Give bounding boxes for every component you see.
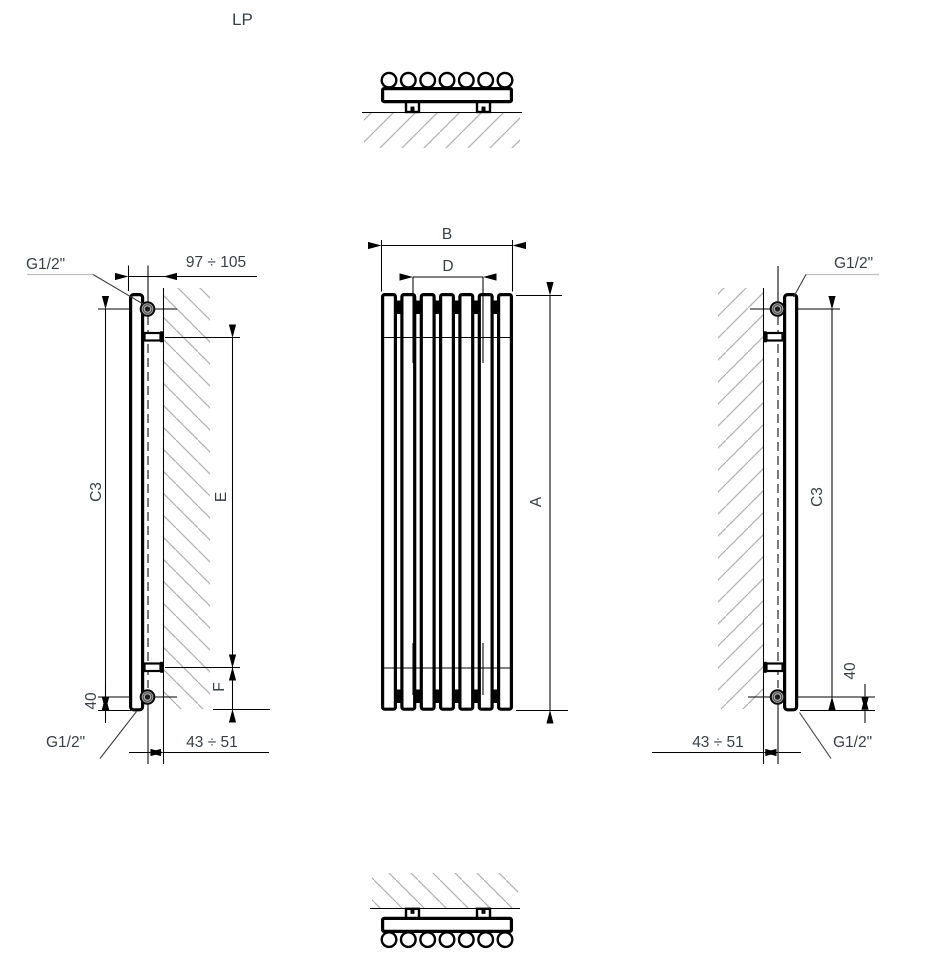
dim-label-43-51: 43 ÷ 51 bbox=[186, 734, 238, 751]
dim-label-A: A bbox=[528, 496, 545, 507]
mounting-bracket bbox=[406, 102, 419, 112]
tube-sections bbox=[382, 932, 513, 947]
wall-bracket-bottom bbox=[763, 662, 782, 673]
dim-label-E: E bbox=[213, 492, 230, 502]
dim-label-F: F bbox=[211, 682, 228, 691]
dimension-axis-wall: 43 ÷ 51 bbox=[652, 734, 801, 753]
collector-section bbox=[383, 89, 512, 102]
connection-valve-bottom bbox=[141, 690, 155, 704]
connection-callout-bottom: G1/2" bbox=[46, 712, 137, 759]
collector-section bbox=[383, 918, 512, 931]
dim-label-D: D bbox=[442, 258, 453, 275]
bottom-view-section bbox=[370, 873, 520, 947]
dim-label-C3: C3 bbox=[809, 487, 826, 507]
mounting-bracket bbox=[477, 102, 490, 112]
dim-label-40: 40 bbox=[842, 662, 859, 680]
dimension-E: E bbox=[213, 338, 233, 667]
dimension-A: A bbox=[516, 296, 568, 711]
drawing-canvas: LP bbox=[0, 0, 937, 967]
dimension-axis-wall: 43 ÷ 51 bbox=[129, 734, 269, 753]
dim-label-40: 40 bbox=[83, 692, 100, 710]
dimension-D: D bbox=[413, 258, 483, 277]
dimension-F: F bbox=[211, 668, 233, 709]
front-view: B D A bbox=[382, 226, 569, 711]
tube-sections bbox=[382, 73, 513, 88]
wall-hatch-bottom bbox=[372, 873, 518, 908]
connection-callout-bottom: G1/2" bbox=[800, 713, 873, 759]
radiator-tubes bbox=[383, 295, 512, 710]
connection-label-bottom: G1/2" bbox=[46, 734, 85, 751]
connection-callout-top: G1/2" bbox=[794, 255, 880, 297]
dim-label-97-105: 97 ÷ 105 bbox=[186, 254, 246, 271]
radiator-profile bbox=[131, 295, 143, 710]
wall-bracket-bottom bbox=[145, 662, 164, 673]
wall-bracket-top bbox=[145, 331, 164, 342]
radiator-profile bbox=[785, 295, 797, 710]
model-label: LP bbox=[232, 10, 253, 29]
radiator-technical-drawing: LP bbox=[0, 0, 937, 967]
wall-hatch-right bbox=[718, 288, 763, 709]
dimension-C3: C3 bbox=[809, 310, 832, 697]
connection-label-top: G1/2" bbox=[26, 256, 65, 273]
right-side-view: C3 40 43 ÷ 51 G1/2" G1/2" bbox=[652, 255, 879, 764]
connection-valve-top bbox=[771, 302, 785, 316]
top-view-section bbox=[362, 73, 522, 148]
left-side-view: 97 ÷ 105 C3 E F 40 43 ÷ 51 bbox=[26, 254, 270, 764]
wall-hatch-top bbox=[364, 113, 520, 148]
dimension-40: 40 bbox=[83, 684, 106, 723]
dim-label-43-51: 43 ÷ 51 bbox=[692, 734, 744, 751]
wall-hatch-left bbox=[164, 288, 210, 709]
dimension-40: 40 bbox=[842, 662, 865, 723]
connection-valve-bottom bbox=[771, 690, 785, 704]
dim-label-C3: C3 bbox=[88, 482, 105, 502]
dim-label-B: B bbox=[442, 226, 452, 243]
dimension-C3: C3 bbox=[88, 310, 106, 697]
connection-callout-top: G1/2" bbox=[26, 256, 144, 305]
connection-label-bottom: G1/2" bbox=[833, 734, 872, 751]
connection-label-top: G1/2" bbox=[834, 255, 873, 272]
wall-bracket-top bbox=[763, 331, 782, 342]
